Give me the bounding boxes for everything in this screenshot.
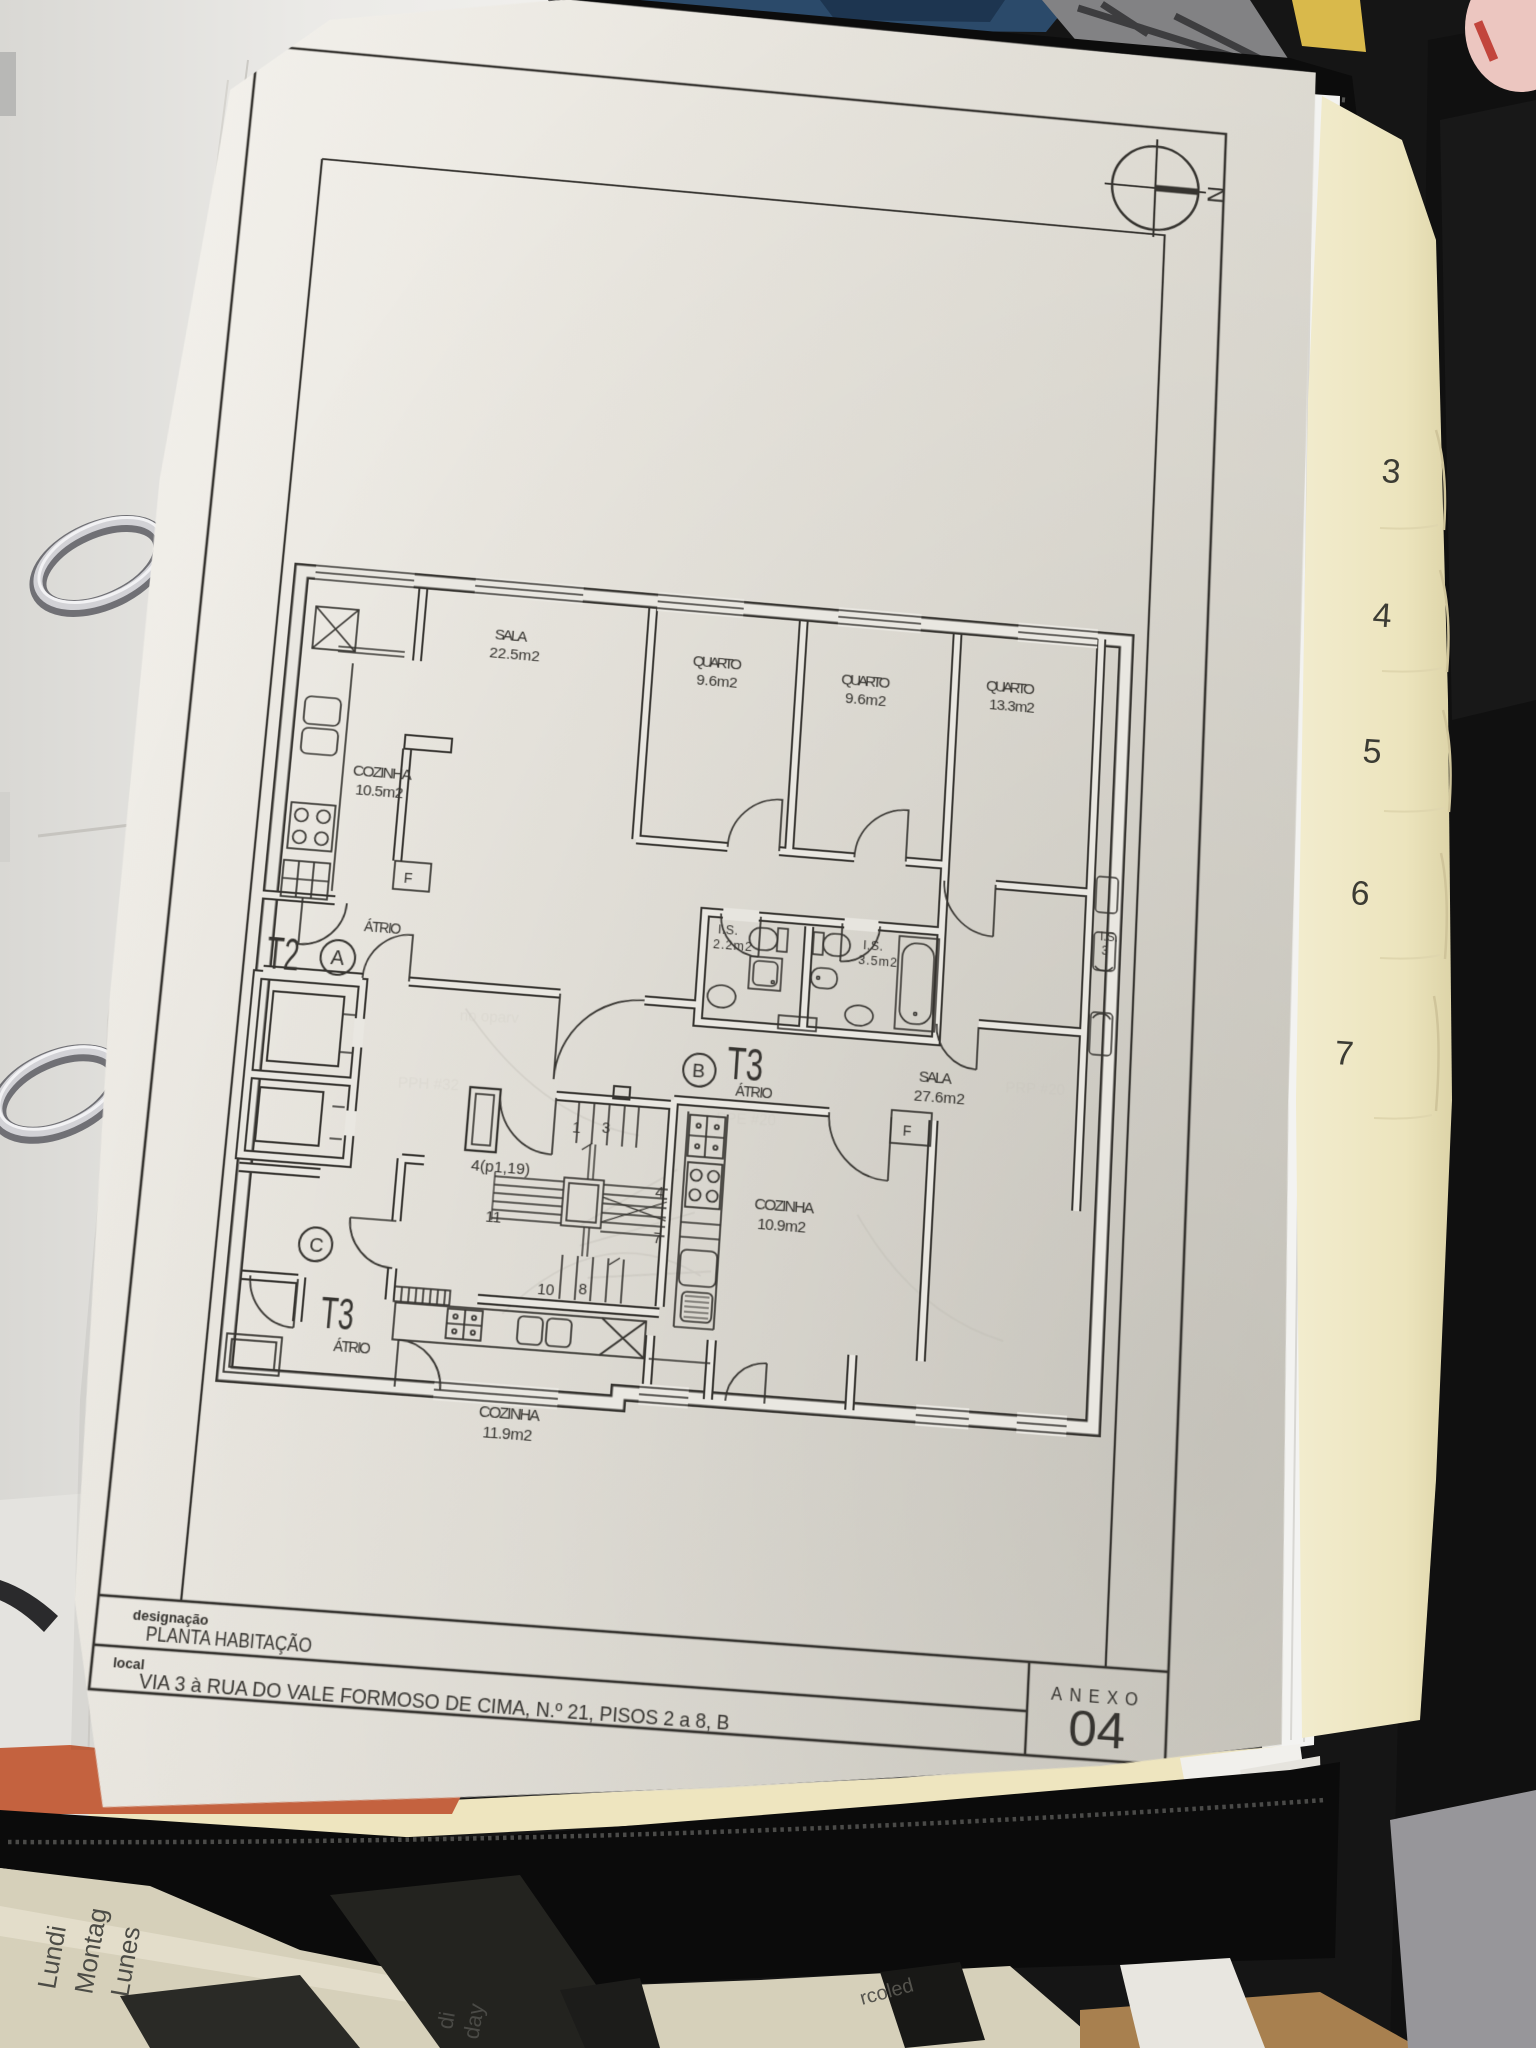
svg-text:PRP #20: PRP #20 bbox=[1005, 1078, 1065, 1098]
svg-text:I.S.: I.S. bbox=[863, 938, 884, 954]
svg-text:10.9m2: 10.9m2 bbox=[757, 1215, 807, 1237]
svg-text:11.9m2: 11.9m2 bbox=[482, 1423, 533, 1445]
svg-text:A: A bbox=[330, 945, 346, 969]
svg-text:9.6m2: 9.6m2 bbox=[696, 672, 738, 692]
svg-text:10: 10 bbox=[537, 1279, 556, 1298]
svg-text:T3: T3 bbox=[319, 1289, 356, 1340]
svg-text:C: C bbox=[308, 1233, 324, 1257]
svg-text:8: 8 bbox=[578, 1279, 588, 1298]
svg-text:I.S.: I.S. bbox=[718, 923, 739, 939]
svg-text:ÁTRIO: ÁTRIO bbox=[363, 918, 402, 937]
svg-text:5: 5 bbox=[1361, 732, 1383, 771]
svg-text:no oparv: no oparv bbox=[459, 1006, 519, 1026]
svg-text:7: 7 bbox=[653, 1228, 663, 1247]
svg-text:T2: T2 bbox=[265, 928, 302, 981]
svg-text:1: 1 bbox=[572, 1118, 582, 1136]
svg-text:6: 6 bbox=[1349, 874, 1371, 913]
svg-text:N: N bbox=[1201, 185, 1229, 204]
svg-text:04: 04 bbox=[1067, 1700, 1126, 1761]
svg-text:7: 7 bbox=[1333, 1034, 1355, 1073]
svg-text:9.6m2: 9.6m2 bbox=[845, 690, 887, 710]
svg-text:3: 3 bbox=[1380, 452, 1402, 491]
svg-text:SALA: SALA bbox=[494, 627, 528, 646]
svg-text:SALA: SALA bbox=[918, 1068, 952, 1088]
svg-text:F: F bbox=[403, 870, 413, 887]
svg-text:3: 3 bbox=[601, 1118, 611, 1136]
svg-text:I.S.: I.S. bbox=[1100, 931, 1118, 945]
svg-text:F: F bbox=[902, 1122, 912, 1139]
svg-text:11: 11 bbox=[485, 1207, 503, 1226]
svg-text:B: B bbox=[692, 1059, 706, 1082]
svg-text:local: local bbox=[112, 1654, 145, 1673]
svg-text:ÁTRIO: ÁTRIO bbox=[333, 1337, 372, 1357]
svg-text:PPH #32: PPH #32 bbox=[398, 1073, 460, 1093]
svg-text:4: 4 bbox=[1371, 596, 1393, 635]
svg-text:T3: T3 bbox=[725, 1038, 764, 1091]
svg-text:3: 3 bbox=[1101, 945, 1108, 958]
svg-text:4: 4 bbox=[655, 1183, 665, 1201]
